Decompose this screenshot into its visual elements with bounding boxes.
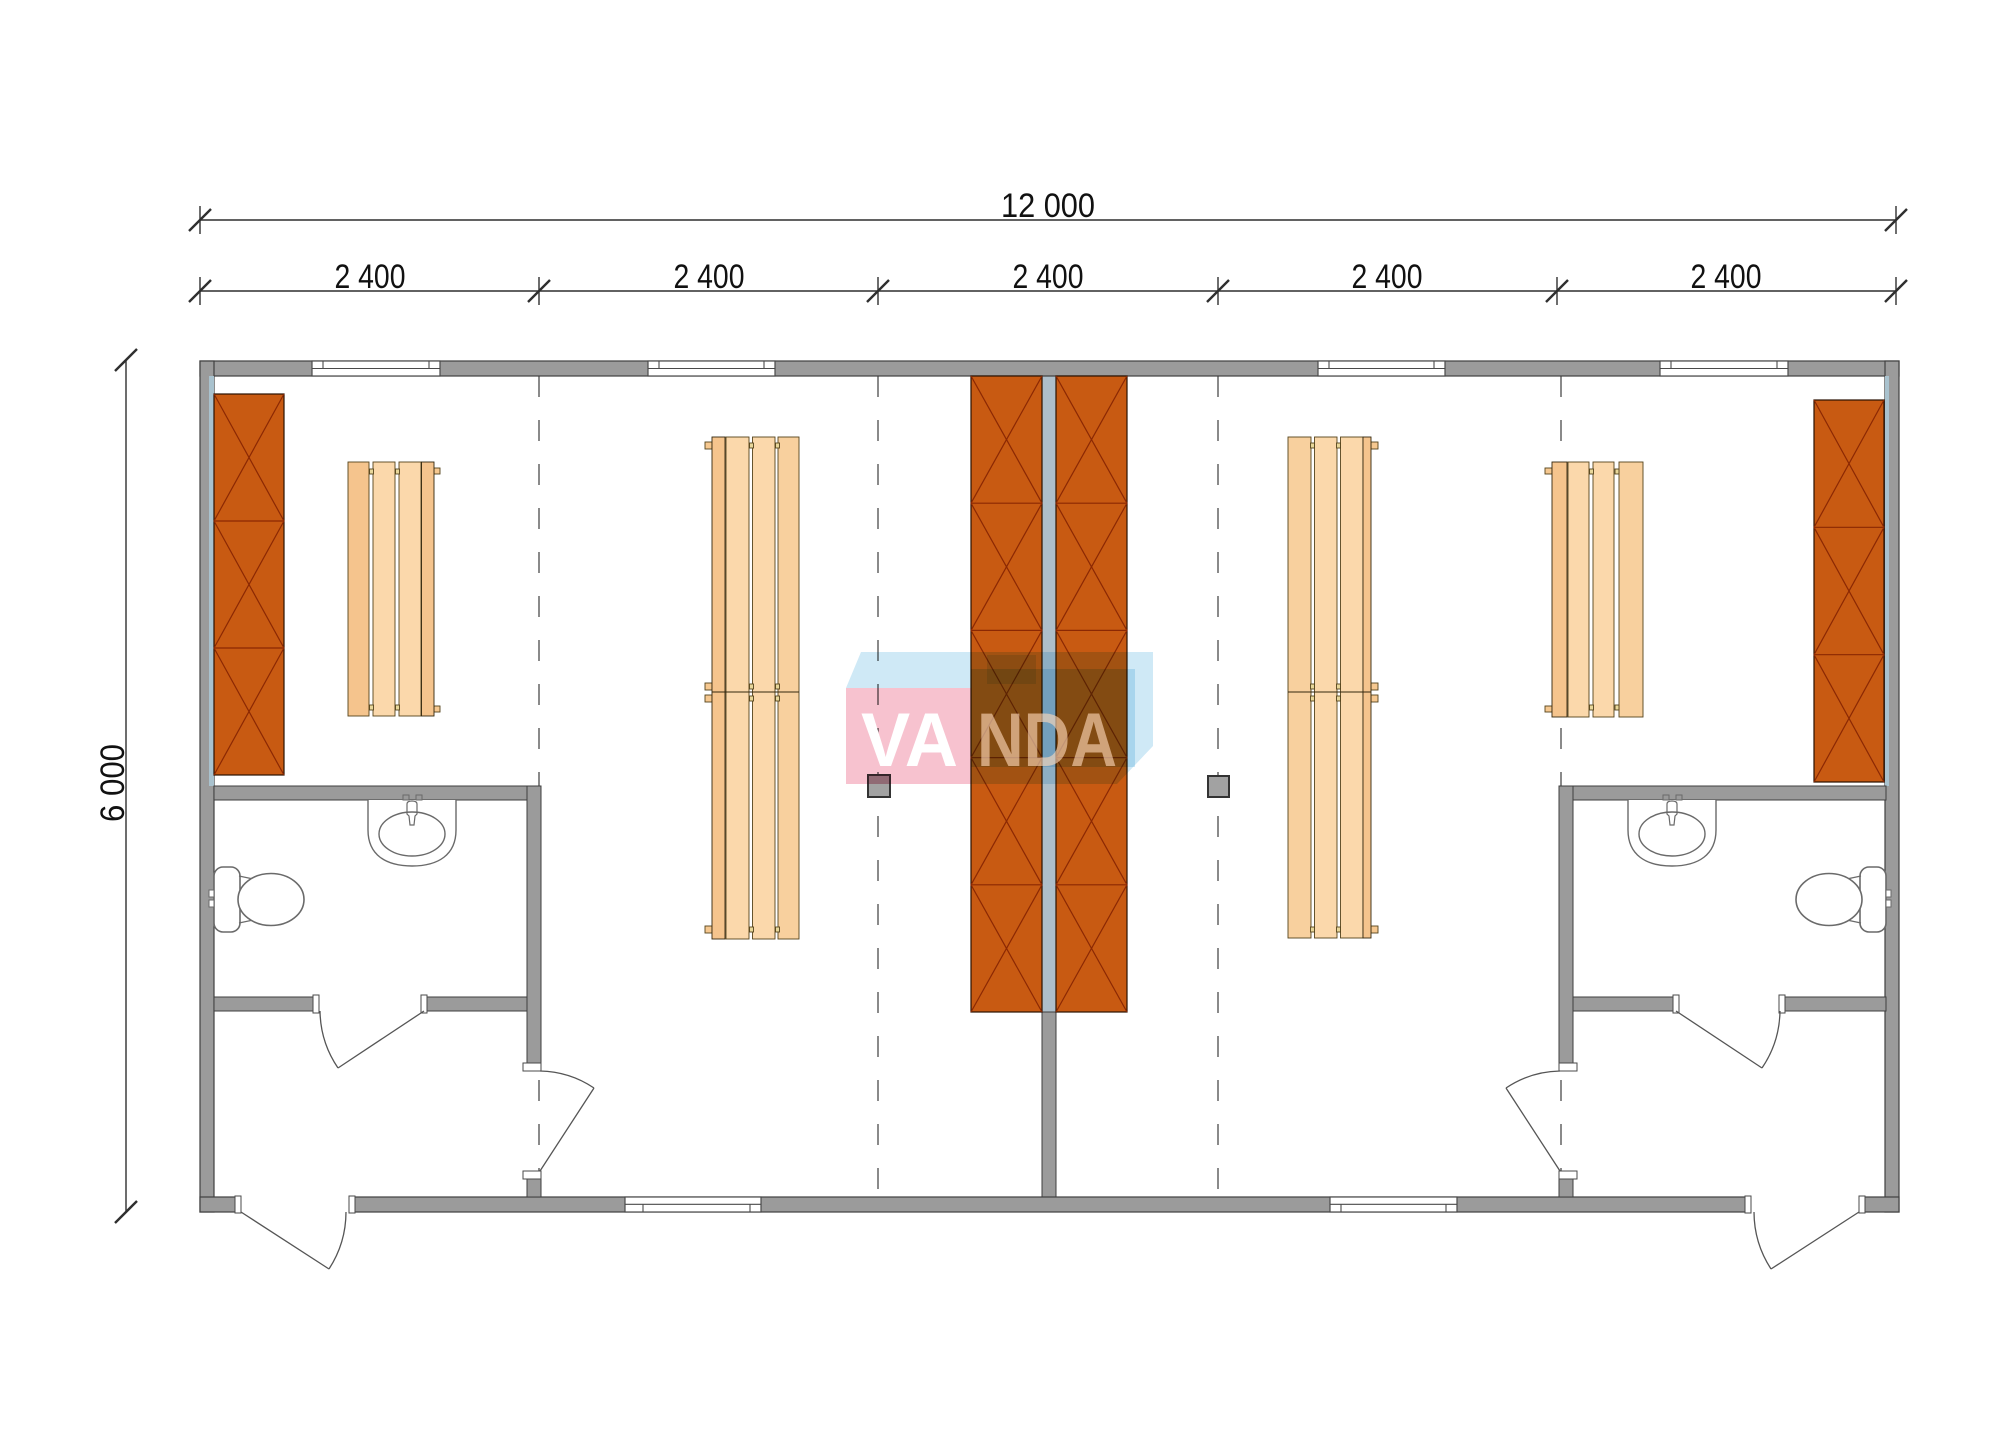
- svg-text:6 000: 6 000: [94, 744, 132, 822]
- svg-text:12 000: 12 000: [1001, 187, 1095, 225]
- svg-text:2 400: 2 400: [335, 258, 406, 296]
- svg-text:2 400: 2 400: [1352, 258, 1423, 296]
- svg-text:NDA: NDA: [977, 698, 1117, 783]
- svg-text:2 400: 2 400: [1013, 258, 1084, 296]
- svg-text:2 400: 2 400: [674, 258, 745, 296]
- svg-text:VA: VA: [861, 698, 958, 783]
- svg-text:2 400: 2 400: [1691, 258, 1762, 296]
